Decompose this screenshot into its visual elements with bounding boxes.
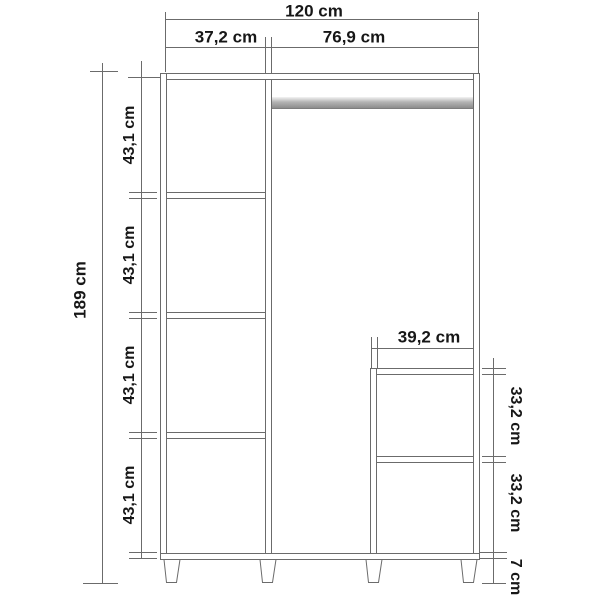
dimension-line-shelf-spacing: [141, 61, 142, 558]
unit-tick-0a: [482, 368, 506, 369]
unit-tick-1a: [482, 456, 506, 457]
shelf-tick-2a: [129, 312, 157, 313]
label-shelf-spacing-1: 43,1 cm: [122, 106, 138, 165]
wardrobe-dimension-diagram: 120 cm 37,2 cm 76,9 cm 189 cm 43,1 cm 43…: [0, 0, 600, 600]
shelf-tick-1a: [129, 192, 157, 193]
hanging-rail: [272, 97, 473, 109]
leg-2: [258, 559, 278, 583]
inner-unit-middle-shelf: [376, 456, 474, 463]
label-total-height: 189 cm: [72, 261, 89, 319]
label-total-width: 120 cm: [285, 3, 343, 20]
shelf-tick-3b: [129, 438, 157, 439]
left-column-shelf-2: [166, 312, 266, 319]
leg-3: [364, 559, 384, 583]
shelf-tick-1b: [129, 198, 157, 199]
section-tick-left: [265, 37, 266, 73]
height-tick-bottom: [83, 583, 118, 584]
unit-tick-2b: [480, 558, 507, 559]
label-shelf-spacing-3: 43,1 cm: [122, 346, 138, 405]
label-unit-compartment-1: 33,2 cm: [507, 387, 523, 446]
extension-line-top-right: [478, 12, 479, 73]
leg-4: [459, 559, 479, 583]
label-right-section-width: 76,9 cm: [323, 29, 385, 46]
left-column-shelf-3: [166, 432, 266, 439]
unit-tick-1b: [482, 462, 506, 463]
shelf-tick-2b: [129, 318, 157, 319]
height-tick-top: [90, 71, 118, 72]
cabinet-center-divider: [265, 79, 272, 554]
unit-tick-0b: [482, 374, 506, 375]
unit-width-tick-a: [371, 337, 372, 368]
unit-tick-2a: [480, 552, 507, 553]
label-shelf-spacing-2: 43,1 cm: [122, 226, 138, 285]
unit-width-tick-b: [377, 337, 378, 368]
unit-tick-3: [482, 583, 506, 584]
label-inner-unit-width: 39,2 cm: [398, 329, 460, 346]
dimension-line-unit-width: [371, 348, 480, 349]
cabinet-bottom-panel: [160, 553, 480, 560]
extension-line-top-left: [165, 12, 166, 72]
dimension-line-total-height: [102, 63, 103, 583]
label-leg-height: 7 cm: [507, 559, 523, 595]
dimension-line-sections: [165, 47, 479, 48]
shelf-tick-0: [128, 77, 162, 78]
dimension-line-unit-heights: [493, 358, 494, 583]
shelf-tick-3a: [129, 432, 157, 433]
leg-1: [162, 559, 182, 583]
cabinet-right-wall: [473, 73, 480, 560]
left-column-shelf-1: [166, 192, 266, 199]
label-unit-compartment-2: 33,2 cm: [507, 474, 523, 533]
shelf-tick-4b: [129, 558, 157, 559]
section-tick-right: [271, 37, 272, 73]
cabinet-top-panel: [160, 73, 480, 80]
label-left-section-width: 37,2 cm: [195, 29, 257, 46]
shelf-tick-4a: [129, 552, 157, 553]
label-shelf-spacing-4: 43,1 cm: [122, 466, 138, 525]
inner-unit-top-shelf: [376, 368, 474, 375]
